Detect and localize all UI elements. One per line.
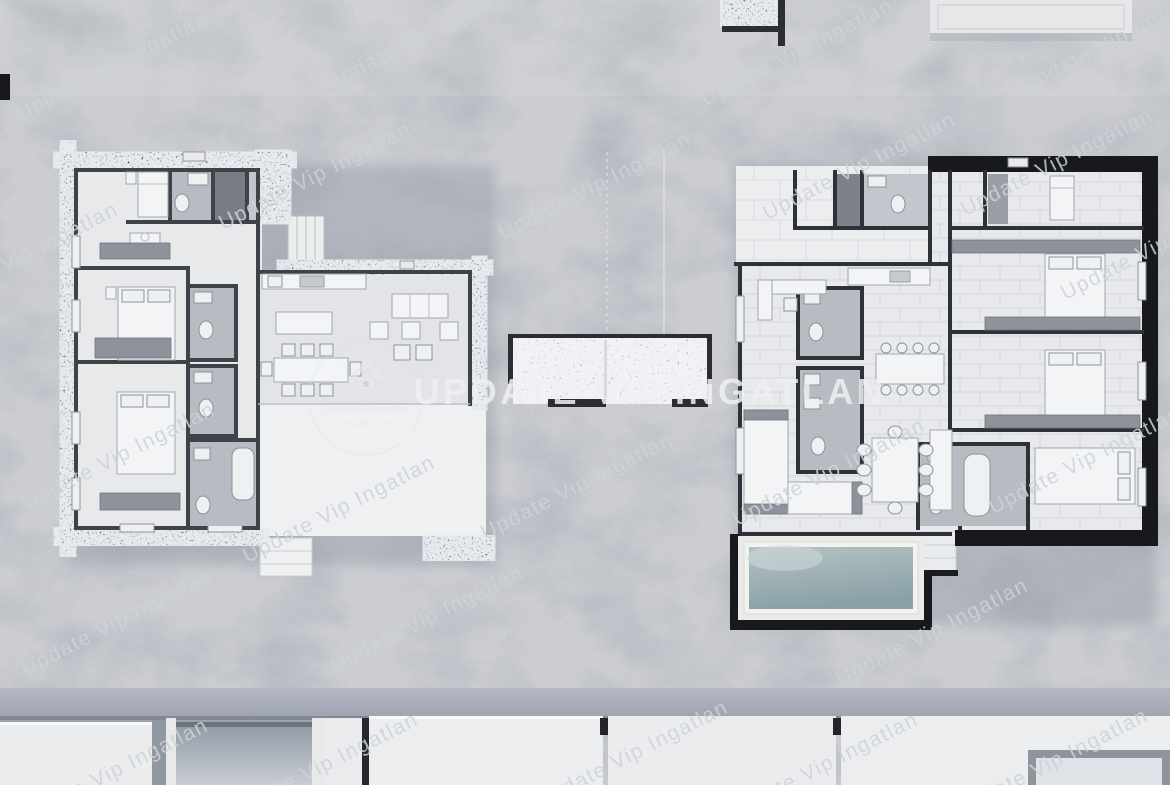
- dining-table: [274, 358, 348, 382]
- wardrobe: [985, 317, 1140, 330]
- chair: [919, 464, 933, 476]
- sink: [194, 372, 212, 383]
- kitchen-sink: [890, 271, 910, 282]
- stool: [897, 385, 907, 395]
- chair: [919, 484, 933, 496]
- wardrobe: [100, 243, 170, 259]
- pillow: [148, 290, 170, 302]
- chair: [282, 384, 295, 396]
- sofa: [392, 294, 448, 318]
- daybed: [1050, 176, 1074, 220]
- entry-canopy: [288, 216, 324, 262]
- armchair: [402, 322, 420, 339]
- neighbor-wall: [778, 0, 785, 46]
- toilet: [199, 321, 213, 339]
- sink: [868, 176, 886, 187]
- bed: [138, 172, 168, 217]
- office-chair: [784, 298, 797, 311]
- chair: [320, 344, 333, 356]
- primary-watermark: UPDATE VIP INGATLAN: [414, 371, 887, 412]
- nightstand: [106, 287, 116, 299]
- stamp-text-line1: Update Vip Ingatlan: [324, 404, 407, 415]
- armchair: [440, 322, 458, 340]
- stool: [913, 343, 923, 353]
- chair: [888, 502, 902, 514]
- sink: [194, 448, 210, 460]
- stool: [913, 385, 923, 395]
- chair: [282, 344, 295, 356]
- roof-vent: [400, 261, 414, 269]
- stool: [897, 343, 907, 353]
- pillow: [1077, 353, 1101, 365]
- cooktop: [268, 276, 282, 287]
- sink: [188, 173, 208, 185]
- kitchen-island: [276, 312, 332, 334]
- site-plan-svg: Update Vip Ingatlan INGATLAN Update Vip …: [0, 0, 1170, 785]
- neighbor-gravel-roof: [722, 0, 780, 26]
- neighbor-chimney: [833, 718, 841, 735]
- boundary-mark: [0, 74, 10, 100]
- toilet: [891, 195, 905, 213]
- pool-terrace: [730, 534, 932, 630]
- toilet: [175, 194, 189, 212]
- pillow: [1049, 353, 1073, 365]
- chair: [301, 384, 314, 396]
- armchair: [370, 322, 388, 339]
- desk: [758, 280, 772, 320]
- toilet: [809, 323, 823, 341]
- wardrobe: [985, 415, 1140, 428]
- site-plan-image: Update Vip Ingatlan INGATLAN Update Vip …: [0, 0, 1170, 785]
- bathroom-2: [190, 288, 234, 358]
- toilet: [196, 496, 210, 514]
- stool: [929, 343, 939, 353]
- bathtub: [964, 454, 990, 516]
- kitchen-counter: [848, 268, 930, 285]
- chair: [919, 444, 933, 456]
- bathtub: [232, 448, 254, 500]
- stool: [929, 385, 939, 395]
- roof-vent: [183, 152, 205, 161]
- wardrobe: [100, 493, 180, 510]
- swimming-pool: [744, 542, 918, 614]
- nightstand: [126, 172, 136, 184]
- pillow: [1049, 257, 1073, 269]
- wardrobe: [952, 240, 1140, 253]
- pillow: [1118, 478, 1130, 500]
- pillow: [122, 290, 144, 302]
- wardrobe: [95, 338, 171, 358]
- stamp-text-line2: INGATLAN: [341, 421, 392, 428]
- left-house-floor-plan: [60, 152, 495, 576]
- coffee-table: [394, 345, 410, 360]
- chair: [301, 344, 314, 356]
- pillow: [147, 395, 169, 407]
- sink: [804, 293, 820, 304]
- sink: [194, 292, 212, 303]
- toilet: [811, 437, 825, 455]
- stool: [881, 343, 891, 353]
- chair: [261, 362, 272, 376]
- bathroom-a: [800, 290, 860, 356]
- chair: [857, 484, 871, 496]
- kitchen-sink: [300, 276, 324, 287]
- coffee-table: [416, 345, 432, 360]
- neighbor-wall: [722, 26, 780, 32]
- pillow: [121, 395, 143, 407]
- neighbor-chimney: [600, 718, 608, 735]
